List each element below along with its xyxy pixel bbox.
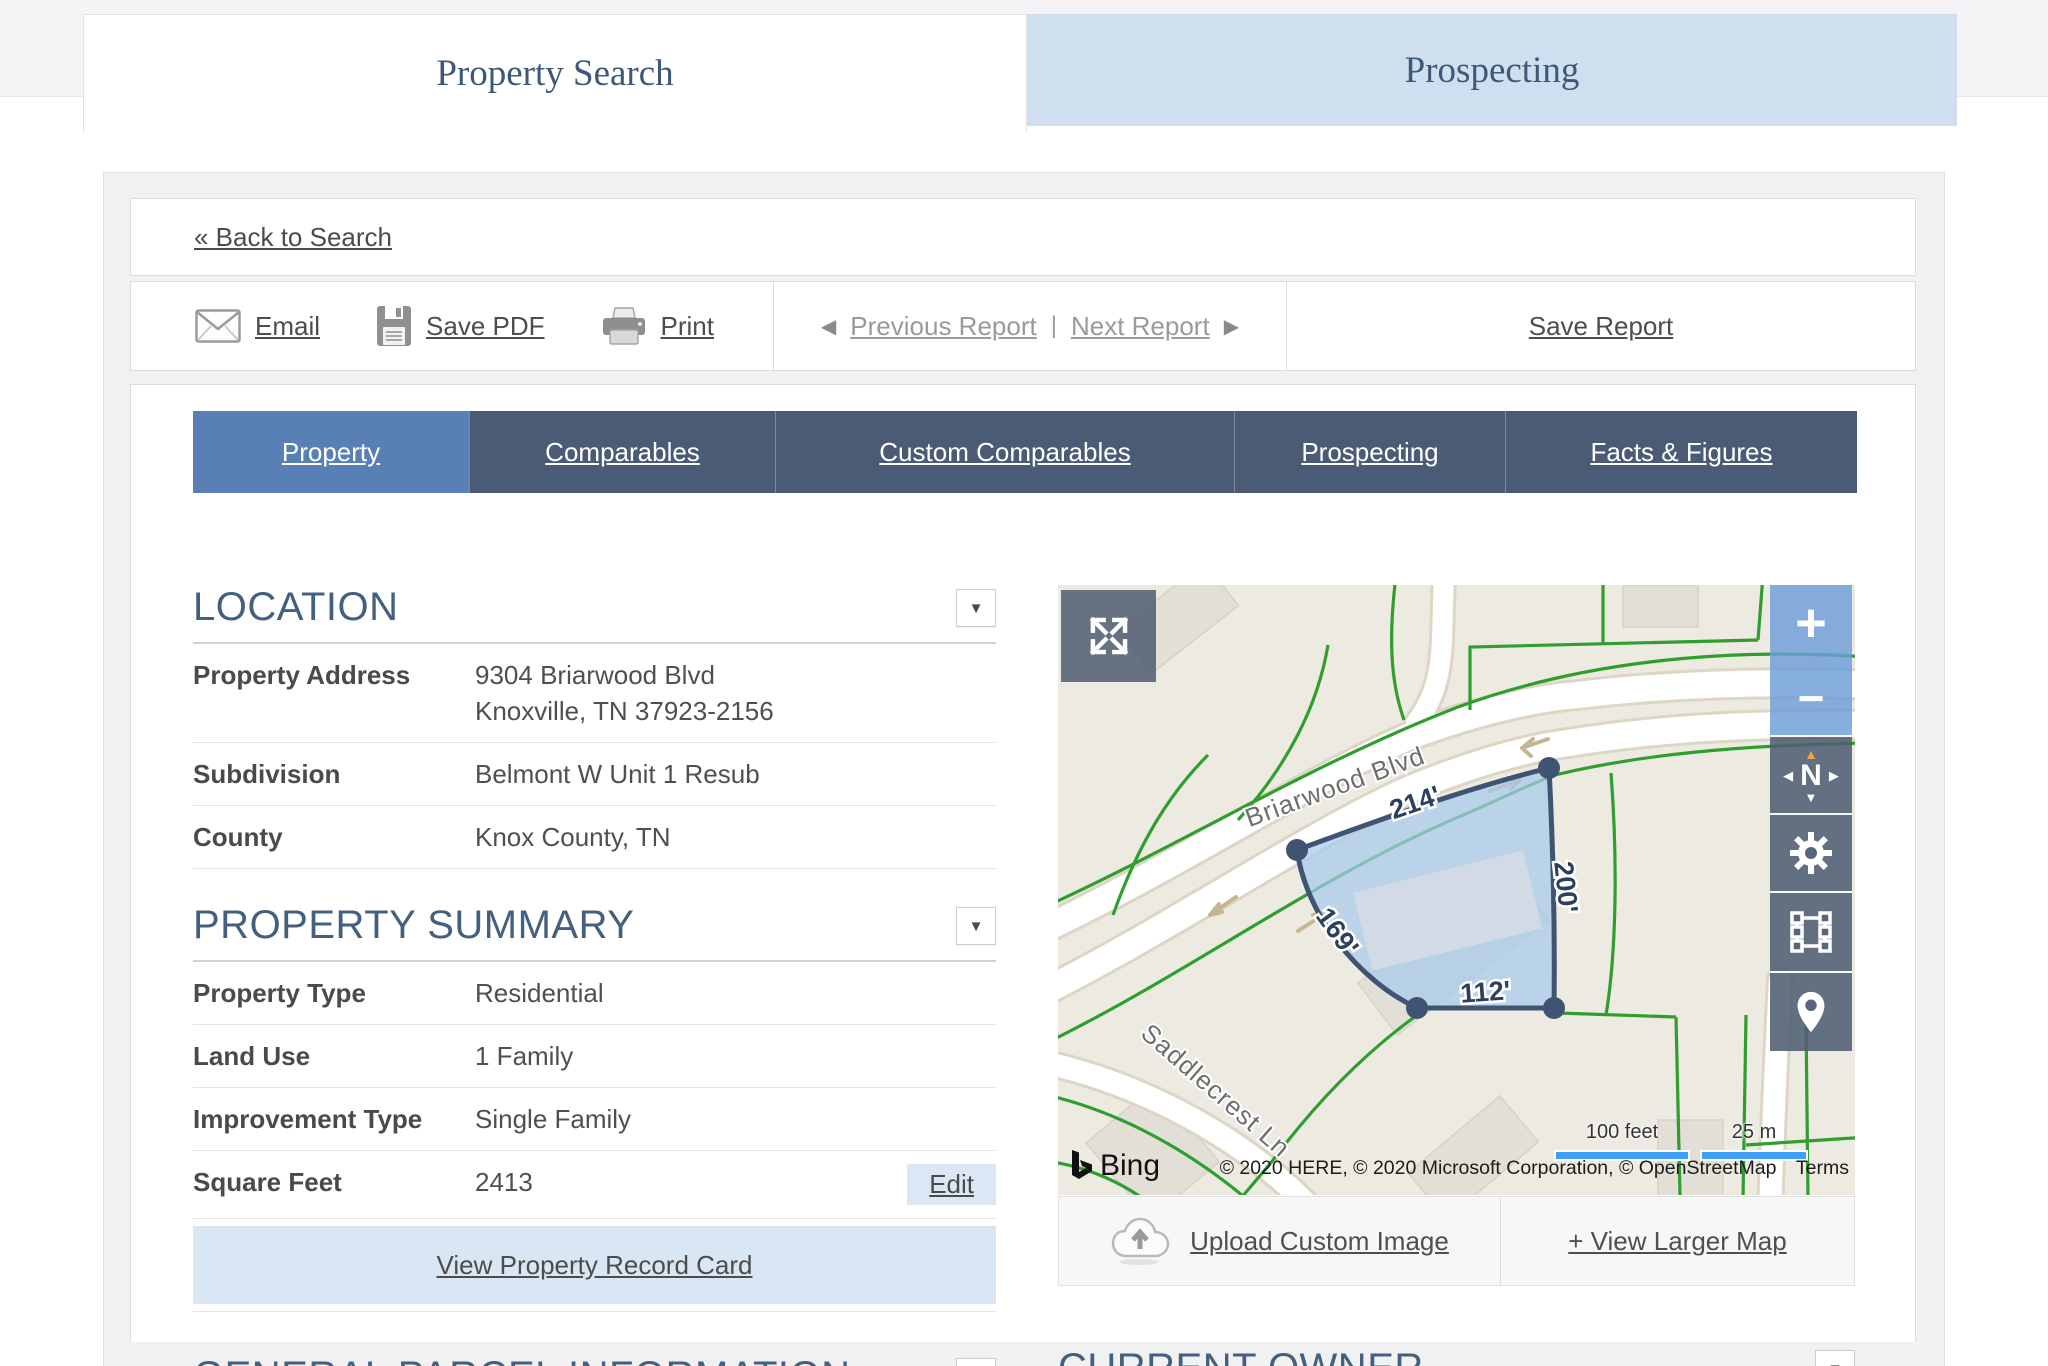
bing-icon bbox=[1072, 1150, 1092, 1182]
property-summary-section-header: PROPERTY SUMMARY ▼ bbox=[193, 903, 996, 962]
tab-comparables[interactable]: Comparables bbox=[469, 411, 775, 493]
map-attribution: © 2020 HERE, © 2020 Microsoft Corporatio… bbox=[1218, 1157, 1778, 1180]
location-collapse-button[interactable]: ▼ bbox=[956, 589, 996, 627]
gear-icon bbox=[1788, 830, 1834, 876]
record-card-bar: View Property Record Card bbox=[193, 1226, 996, 1304]
current-owner-title: CURRENT OWNER bbox=[1058, 1346, 1424, 1366]
map-terms-link[interactable]: Terms bbox=[1796, 1157, 1849, 1180]
record-card-bar-wrap: View Property Record Card bbox=[193, 1219, 996, 1312]
map-settings-button[interactable] bbox=[1770, 813, 1852, 891]
save-pdf-button[interactable]: Save PDF bbox=[376, 305, 545, 347]
map-footer: Upload Custom Image + View Larger Map bbox=[1058, 1196, 1855, 1286]
property-type-row: Property Type Residential bbox=[193, 962, 996, 1025]
general-parcel-title: GENERAL PARCEL INFORMATION bbox=[193, 1354, 851, 1366]
save-pdf-icon bbox=[376, 305, 412, 347]
tab-prospecting-top[interactable]: Prospecting bbox=[1027, 14, 1957, 126]
tab-comparables-label: Comparables bbox=[545, 437, 700, 468]
tab-facts-figures[interactable]: Facts & Figures bbox=[1505, 411, 1857, 493]
collapse-arrow-icon: ▼ bbox=[1828, 1361, 1843, 1366]
tab-property[interactable]: Property bbox=[193, 411, 469, 493]
report-wrapper: « Back to Search Email bbox=[103, 172, 1945, 1366]
toolbar-report-nav: ◀ Previous Report | Next Report ▶ bbox=[773, 282, 1286, 370]
general-parcel-collapse-button[interactable]: ▼ bbox=[956, 1358, 996, 1366]
tab-custom-comparables-label: Custom Comparables bbox=[879, 437, 1130, 468]
current-owner-collapse-button[interactable]: ▼ bbox=[1815, 1350, 1855, 1366]
print-label: Print bbox=[661, 311, 714, 342]
property-type-value: Residential bbox=[475, 975, 604, 1011]
compass-left-arrow[interactable]: ◀ bbox=[1783, 769, 1793, 782]
subdivision-row: Subdivision Belmont W Unit 1 Resub bbox=[193, 743, 996, 806]
report-toolbar: Email Save PDF bbox=[130, 281, 1916, 371]
upload-custom-image-button[interactable]: Upload Custom Image bbox=[1059, 1197, 1501, 1285]
improvement-type-value: Single Family bbox=[475, 1101, 631, 1137]
print-button[interactable]: Print bbox=[601, 306, 714, 346]
save-pdf-label: Save PDF bbox=[426, 311, 545, 342]
square-feet-row: Square Feet 2413 Edit bbox=[193, 1151, 996, 1219]
compass-icon: ▲ ◀ N ▶ ▼ bbox=[1783, 747, 1839, 804]
map-location-pin-button[interactable] bbox=[1770, 971, 1852, 1051]
county-row: County Knox County, TN bbox=[193, 806, 996, 869]
tab-property-label: Property bbox=[282, 437, 380, 468]
tab-prospecting[interactable]: Prospecting bbox=[1234, 411, 1505, 493]
current-owner-section-header: CURRENT OWNER ▼ bbox=[1058, 1346, 1855, 1366]
map-canvas: 214' 200' 169' 112' Briarwood Blvd Saddl… bbox=[1058, 585, 1855, 1195]
property-address-row: Property Address 9304 Briarwood Blvd Kno… bbox=[193, 644, 996, 743]
tab-property-search-label: Property Search bbox=[436, 52, 673, 95]
property-address-line1: 9304 Briarwood Blvd bbox=[475, 657, 774, 693]
scale-bar-feet: 100 feet bbox=[1556, 1121, 1688, 1159]
tab-facts-figures-label: Facts & Figures bbox=[1590, 437, 1772, 468]
land-use-label: Land Use bbox=[193, 1038, 475, 1074]
right-column: 214' 200' 169' 112' Briarwood Blvd Saddl… bbox=[1058, 585, 1855, 1366]
edit-label: Edit bbox=[929, 1169, 974, 1199]
property-address-value: 9304 Briarwood Blvd Knoxville, TN 37923-… bbox=[475, 657, 774, 729]
county-label: County bbox=[193, 819, 475, 855]
compass-right-arrow[interactable]: ▶ bbox=[1829, 769, 1839, 782]
previous-report-arrow-icon: ◀ bbox=[821, 314, 836, 339]
collapse-arrow-icon: ▼ bbox=[969, 918, 984, 935]
general-parcel-section-header: GENERAL PARCEL INFORMATION ▼ bbox=[193, 1354, 996, 1366]
tab-prospecting-top-label: Prospecting bbox=[1405, 49, 1580, 92]
toolbar-save-report: Save Report bbox=[1286, 282, 1915, 370]
location-section-header: LOCATION ▼ bbox=[193, 585, 996, 644]
improvement-type-label: Improvement Type bbox=[193, 1101, 475, 1137]
square-feet-label: Square Feet bbox=[193, 1164, 475, 1200]
dim-right-label: 200' bbox=[1548, 860, 1583, 914]
improvement-type-row: Improvement Type Single Family bbox=[193, 1088, 996, 1151]
view-property-record-card-link[interactable]: View Property Record Card bbox=[437, 1250, 753, 1281]
expand-icon bbox=[1084, 611, 1134, 661]
property-type-label: Property Type bbox=[193, 975, 475, 1011]
toolbar-actions: Email Save PDF bbox=[131, 282, 773, 370]
location-title: LOCATION bbox=[193, 585, 399, 630]
email-icon bbox=[195, 309, 241, 343]
view-larger-map-label: + View Larger Map bbox=[1568, 1226, 1786, 1257]
next-report-arrow-icon: ▶ bbox=[1224, 314, 1239, 339]
property-address-line2: Knoxville, TN 37923-2156 bbox=[475, 693, 774, 729]
property-report-screen: Property Search Prospecting « Back to Se… bbox=[0, 0, 2048, 1366]
land-use-row: Land Use 1 Family bbox=[193, 1025, 996, 1088]
save-report-link[interactable]: Save Report bbox=[1529, 311, 1674, 342]
map-compass-control[interactable]: ▲ ◀ N ▶ ▼ bbox=[1770, 735, 1852, 813]
zoom-out-button[interactable]: − bbox=[1770, 660, 1852, 735]
upload-custom-image-label: Upload Custom Image bbox=[1190, 1226, 1449, 1257]
upload-cloud-icon bbox=[1110, 1216, 1172, 1266]
property-summary-title: PROPERTY SUMMARY bbox=[193, 903, 634, 948]
map-measure-button[interactable] bbox=[1770, 891, 1852, 971]
compass-down-arrow[interactable]: ▼ bbox=[1805, 791, 1818, 804]
tab-custom-comparables[interactable]: Custom Comparables bbox=[775, 411, 1234, 493]
square-feet-value: 2413 bbox=[475, 1164, 533, 1200]
subdivision-value: Belmont W Unit 1 Resub bbox=[475, 756, 760, 792]
map-control-strip: + − ▲ ◀ N ▶ ▼ bbox=[1770, 585, 1852, 1051]
scale-feet-label: 100 feet bbox=[1556, 1121, 1688, 1144]
previous-report-link[interactable]: Previous Report bbox=[850, 311, 1036, 342]
subdivision-label: Subdivision bbox=[193, 756, 475, 792]
property-address-label: Property Address bbox=[193, 657, 475, 693]
left-column: LOCATION ▼ Property Address 9304 Briarwo… bbox=[193, 585, 996, 1366]
email-button[interactable]: Email bbox=[195, 309, 320, 343]
dim-bottom-label: 112' bbox=[1459, 975, 1511, 1008]
land-use-value: 1 Family bbox=[475, 1038, 573, 1074]
map-zoom-controls: + − bbox=[1770, 585, 1852, 735]
report-nav-tabs: Property Comparables Custom Comparables … bbox=[193, 411, 1857, 493]
collapse-arrow-icon: ▼ bbox=[969, 600, 984, 617]
county-value: Knox County, TN bbox=[475, 819, 671, 855]
scale-bar-meters: 25 m bbox=[1702, 1121, 1806, 1159]
scale-meters-label: 25 m bbox=[1702, 1121, 1806, 1144]
edit-square-feet-button[interactable]: Edit bbox=[907, 1164, 996, 1205]
view-larger-map-button[interactable]: + View Larger Map bbox=[1501, 1197, 1854, 1285]
location-pin-icon bbox=[1791, 989, 1831, 1035]
zoom-in-button[interactable]: + bbox=[1770, 585, 1852, 660]
email-label: Email bbox=[255, 311, 320, 342]
next-report-link[interactable]: Next Report bbox=[1071, 311, 1210, 342]
tab-property-search[interactable]: Property Search bbox=[83, 14, 1027, 132]
map-expand-button[interactable] bbox=[1061, 590, 1156, 682]
property-summary-collapse-button[interactable]: ▼ bbox=[956, 907, 996, 945]
tab-prospecting-label: Prospecting bbox=[1301, 437, 1438, 468]
print-icon bbox=[601, 306, 647, 346]
report-nav-divider: | bbox=[1051, 312, 1057, 340]
report-body-panel: Property Comparables Custom Comparables … bbox=[130, 384, 1916, 1342]
back-panel: « Back to Search bbox=[130, 198, 1916, 276]
parcel-map[interactable]: 214' 200' 169' 112' Briarwood Blvd Saddl… bbox=[1058, 585, 1855, 1195]
back-to-search-link[interactable]: « Back to Search bbox=[194, 222, 392, 253]
compass-north-label: N bbox=[1800, 761, 1822, 791]
bing-label: Bing bbox=[1100, 1149, 1160, 1183]
measure-icon bbox=[1788, 910, 1834, 954]
bing-logo[interactable]: Bing bbox=[1072, 1149, 1160, 1183]
